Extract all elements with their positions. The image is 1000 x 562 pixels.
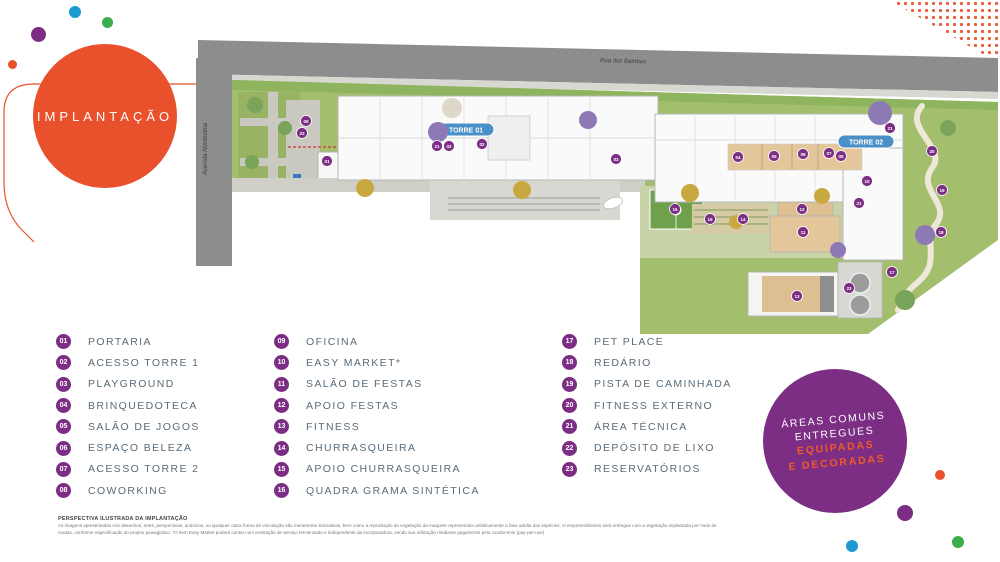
plan-marker-15: 15 — [705, 214, 716, 225]
legend-item-label: REDÁRIO — [594, 357, 652, 369]
legend-item: 20FITNESS EXTERNO — [562, 395, 732, 416]
legend-item-label: SALÃO DE JOGOS — [88, 421, 200, 433]
legend-item: 19PISTA DE CAMINHADA — [562, 374, 732, 395]
svg-text:01: 01 — [324, 159, 330, 164]
decorative-dot-purple-br — [897, 505, 913, 521]
svg-text:17: 17 — [889, 270, 895, 275]
svg-text:04: 04 — [735, 155, 741, 160]
svg-text:20: 20 — [929, 149, 935, 154]
legend-item: 10EASY MARKET* — [274, 352, 480, 373]
legend-column-2: 09OFICINA10EASY MARKET*11SALÃO DE FESTAS… — [274, 331, 480, 501]
plan-marker-02: 02 — [477, 139, 488, 150]
legend-item: 18REDÁRIO — [562, 352, 732, 373]
svg-text:15: 15 — [707, 217, 713, 222]
svg-text:13: 13 — [794, 294, 800, 299]
svg-text:12: 12 — [799, 207, 805, 212]
legend-item-label: COWORKING — [88, 485, 168, 497]
plan-marker-13: 13 — [792, 291, 803, 302]
plan-marker-21: 21 — [885, 123, 896, 134]
decorative-dot-teal-br — [846, 540, 858, 552]
svg-text:21: 21 — [887, 126, 893, 131]
legend-item-label: APOIO CHURRASQUEIRA — [306, 463, 461, 475]
svg-text:10: 10 — [864, 179, 870, 184]
legend-item-number: 11 — [274, 377, 289, 392]
legend-item-number: 03 — [56, 377, 71, 392]
legend-item-number: 10 — [274, 355, 289, 370]
svg-text:16: 16 — [672, 207, 678, 212]
legend-item-number: 02 — [56, 355, 71, 370]
svg-text:19: 19 — [939, 188, 945, 193]
page-title: IMPLANTAÇÃO — [37, 109, 173, 124]
legend-item-number: 14 — [274, 441, 289, 456]
legend-item-number: 05 — [56, 419, 71, 434]
legend-item: 06ESPAÇO BELEZA — [56, 437, 200, 458]
svg-text:03: 03 — [613, 157, 619, 162]
legend-item-number: 23 — [562, 462, 577, 477]
plan-marker-10: 10 — [862, 176, 873, 187]
tower1-building: TORRE 01 — [338, 96, 658, 180]
legend-item: 01PORTARIA — [56, 331, 200, 352]
legend-item: 08COWORKING — [56, 480, 200, 501]
svg-text:02: 02 — [479, 142, 485, 147]
legend-item-label: ACESSO TORRE 2 — [88, 463, 199, 475]
svg-text:21: 21 — [434, 144, 440, 149]
legend-item: 04BRINQUEDOTECA — [56, 395, 200, 416]
legend-item: 05SALÃO DE JOGOS — [56, 416, 200, 437]
legend-item: 23RESERVATÓRIOS — [562, 459, 732, 480]
plan-marker-09: 09 — [301, 116, 312, 127]
plan-marker-23: 23 — [844, 283, 855, 294]
delivered-areas-badge: ÁREAS COMUNS ENTREGUES EQUIPADAS E DECOR… — [763, 369, 907, 513]
street-left: Avenida Nordestina — [196, 58, 232, 266]
svg-text:22: 22 — [299, 131, 305, 136]
tower1-label: TORRE 01 — [449, 128, 483, 135]
disclaimer: PERSPECTIVA ILUSTRADA DA IMPLANTAÇÃO As … — [58, 516, 726, 537]
legend-item: 21ÁREA TÉCNICA — [562, 416, 732, 437]
legend-item: 22DEPÓSITO DE LIXO — [562, 437, 732, 458]
plan-marker-05: 05 — [769, 151, 780, 162]
legend-item: 03PLAYGROUND — [56, 374, 200, 395]
legend-item-label: ESPAÇO BELEZA — [88, 442, 192, 454]
plan-marker-19: 19 — [937, 185, 948, 196]
svg-text:02: 02 — [446, 144, 452, 149]
legend-item-number: 08 — [56, 483, 71, 498]
legend-item-label: PORTARIA — [88, 336, 152, 348]
legend-item: 15APOIO CHURRASQUEIRA — [274, 459, 480, 480]
legend-item: 02ACESSO TORRE 1 — [56, 352, 200, 373]
plan-marker-04: 04 — [733, 152, 744, 163]
legend-item-number: 15 — [274, 462, 289, 477]
legend-item-label: QUADRA GRAMA SINTÉTICA — [306, 485, 480, 497]
title-circle: IMPLANTAÇÃO — [33, 44, 177, 188]
svg-text:11: 11 — [801, 230, 806, 235]
legend-item: 14CHURRASQUEIRA — [274, 437, 480, 458]
decorative-dot-orange-br — [935, 470, 945, 480]
disclaimer-body: As imagens apresentadas nos desenhos, ar… — [58, 522, 726, 537]
legend-item: 13FITNESS — [274, 416, 480, 437]
legend-item-number: 16 — [274, 483, 289, 498]
legend-item-label: RESERVATÓRIOS — [594, 463, 701, 475]
plan-marker-21: 21 — [854, 198, 865, 209]
legend-item-number: 06 — [56, 441, 71, 456]
legend-item-number: 04 — [56, 398, 71, 413]
legend-item: 09OFICINA — [274, 331, 480, 352]
plan-marker-11: 11 — [798, 227, 809, 238]
legend-item-label: ÁREA TÉCNICA — [594, 421, 688, 433]
legend-item-number: 20 — [562, 398, 577, 413]
legend-item: 07ACESSO TORRE 2 — [56, 459, 200, 480]
legend-item-label: OFICINA — [306, 336, 358, 348]
svg-text:06: 06 — [800, 152, 806, 157]
legend-item-number: 18 — [562, 355, 577, 370]
legend-item-label: PET PLACE — [594, 336, 664, 348]
legend-item-number: 22 — [562, 441, 577, 456]
legend-column-1: 01PORTARIA02ACESSO TORRE 103PLAYGROUND04… — [56, 331, 200, 501]
svg-text:23: 23 — [846, 286, 852, 291]
legend-item: 12APOIO FESTAS — [274, 395, 480, 416]
svg-text:09: 09 — [303, 119, 309, 124]
legend-item: 16QUADRA GRAMA SINTÉTICA — [274, 480, 480, 501]
plan-marker-21: 21 — [432, 141, 443, 152]
legend-item-label: EASY MARKET* — [306, 357, 401, 369]
plan-marker-18: 18 — [936, 227, 947, 238]
legend-item-number: 09 — [274, 334, 289, 349]
legend-item-label: CHURRASQUEIRA — [306, 442, 416, 454]
legend-item: 17PET PLACE — [562, 331, 732, 352]
legend-item-number: 21 — [562, 419, 577, 434]
legend-item-number: 13 — [274, 419, 289, 434]
legend-item-label: DEPÓSITO DE LIXO — [594, 442, 715, 454]
svg-text:08: 08 — [838, 154, 844, 159]
legend-item-label: FITNESS — [306, 421, 360, 433]
svg-text:05: 05 — [771, 154, 777, 159]
plan-marker-22: 22 — [297, 128, 308, 139]
legend-item-number: 12 — [274, 398, 289, 413]
street-left-label: Avenida Nordestina — [203, 122, 209, 176]
legend-item-label: APOIO FESTAS — [306, 400, 399, 412]
legend-item-label: PISTA DE CAMINHADA — [594, 378, 732, 390]
tower2-label: TORRE 02 — [849, 140, 883, 147]
plan-marker-01: 01 — [322, 156, 333, 167]
svg-text:14: 14 — [740, 217, 746, 222]
plan-marker-06: 06 — [798, 149, 809, 160]
street-top-label: Rua dos Bambus — [600, 58, 646, 65]
legend-item-number: 07 — [56, 462, 71, 477]
legend-item-number: 01 — [56, 334, 71, 349]
legend-item-label: ACESSO TORRE 1 — [88, 357, 199, 369]
legend-column-3: 17PET PLACE18REDÁRIO19PISTA DE CAMINHADA… — [562, 331, 732, 480]
plan-marker-08: 08 — [836, 151, 847, 162]
plan-marker-17: 17 — [887, 267, 898, 278]
plan-marker-20: 20 — [927, 146, 938, 157]
legend-item-number: 19 — [562, 377, 577, 392]
plan-marker-16: 16 — [670, 204, 681, 215]
plan-marker-12: 12 — [797, 204, 808, 215]
svg-text:18: 18 — [938, 230, 944, 235]
plan-marker-02: 02 — [444, 141, 455, 152]
legend-item: 11SALÃO DE FESTAS — [274, 374, 480, 395]
page: Rua dos Bambus Avenida Nordestina — [0, 0, 1000, 562]
plan-marker-14: 14 — [738, 214, 749, 225]
legend-item-label: PLAYGROUND — [88, 378, 175, 390]
svg-text:07: 07 — [826, 151, 832, 156]
svg-text:21: 21 — [856, 201, 862, 206]
plan-marker-07: 07 — [824, 148, 835, 159]
legend-item-label: SALÃO DE FESTAS — [306, 378, 423, 390]
legend-item-number: 17 — [562, 334, 577, 349]
legend-item-label: FITNESS EXTERNO — [594, 400, 713, 412]
plan-marker-03: 03 — [611, 154, 622, 165]
decorative-dot-green-br — [952, 536, 964, 548]
legend-item-label: BRINQUEDOTECA — [88, 400, 198, 412]
